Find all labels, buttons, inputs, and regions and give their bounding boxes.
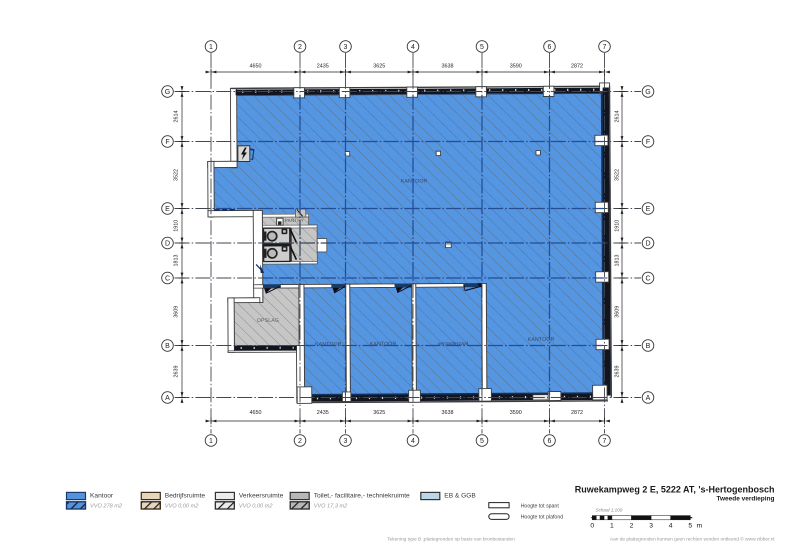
svg-text:D: D [645,240,650,247]
svg-text:3638: 3638 [442,410,454,416]
svg-text:2872: 2872 [571,63,583,69]
svg-text:KANTOOR: KANTOOR [401,178,428,184]
svg-text:2872: 2872 [571,410,583,416]
svg-text:C: C [645,275,650,282]
svg-text:Hoogte tot spant: Hoogte tot spant [521,504,560,510]
svg-text:2435: 2435 [317,410,329,416]
svg-text:2614: 2614 [615,111,621,123]
svg-text:3: 3 [344,44,348,51]
svg-text:5: 5 [480,438,484,445]
svg-text:1910: 1910 [174,220,180,232]
svg-text:KANTOOR: KANTOOR [370,341,397,347]
svg-text:PANTRY: PANTRY [285,218,304,223]
svg-text:5: 5 [480,44,484,51]
svg-text:1: 1 [209,44,213,51]
svg-text:OPSLAG: OPSLAG [257,318,279,324]
svg-text:D: D [165,240,170,247]
svg-text:3522: 3522 [615,169,621,181]
svg-text:G: G [165,89,170,96]
svg-text:VVO 17,3 m2: VVO 17,3 m2 [314,504,348,510]
svg-text:m: m [696,522,702,529]
svg-text:Toilet,- facilitaire,- technie: Toilet,- facilitaire,- techniekruimte [314,493,410,500]
svg-text:3625: 3625 [373,410,385,416]
svg-text:B: B [165,343,170,350]
svg-text:1813: 1813 [615,255,621,267]
svg-text:3: 3 [649,522,653,529]
svg-text:KANTOOR: KANTOOR [315,342,342,348]
svg-text:7: 7 [603,44,607,51]
svg-text:Schaal 1:100: Schaal 1:100 [596,507,623,512]
svg-text:2435: 2435 [317,63,329,69]
svg-text:VVO 0,00 m2: VVO 0,00 m2 [239,504,273,510]
svg-text:4650: 4650 [250,410,262,416]
svg-text:F: F [165,139,169,146]
svg-text:2: 2 [298,438,302,445]
svg-text:C: C [165,275,170,282]
svg-text:Tweede verdieping: Tweede verdieping [716,495,774,502]
svg-text:E: E [165,206,170,213]
svg-text:EB & GGB: EB & GGB [444,493,476,500]
svg-text:2639: 2639 [174,366,180,378]
svg-text:Tekening type B ;plattegronden: Tekening type B ;plattegronden op basis … [387,537,515,543]
svg-text:0: 0 [590,522,594,529]
svg-text:4: 4 [411,438,415,445]
svg-text:A: A [646,395,651,402]
svg-text:4650: 4650 [250,63,262,69]
svg-text:3: 3 [344,438,348,445]
svg-text:B: B [646,343,651,350]
svg-text:3638: 3638 [442,63,454,69]
svg-text:2614: 2614 [174,111,180,123]
svg-text:G: G [645,89,650,96]
svg-text:KANTOOR: KANTOOR [528,337,555,343]
svg-text:VVO 278 m2: VVO 278 m2 [90,504,123,510]
svg-text:6: 6 [548,44,552,51]
svg-text:1: 1 [209,438,213,445]
svg-text:F: F [646,139,650,146]
svg-text:E: E [646,206,651,213]
svg-text:VVO 0,00 m2: VVO 0,00 m2 [165,504,199,510]
svg-text:5: 5 [688,522,692,529]
svg-text:Kantoor: Kantoor [90,493,114,500]
svg-text:4: 4 [669,522,673,529]
svg-text:3590: 3590 [510,410,522,416]
svg-text:Bedrijfsruimte: Bedrijfsruimte [165,493,206,500]
svg-text:3625: 3625 [373,63,385,69]
svg-text:Ruwekampweg 2 E, 5222 AT, 's-H: Ruwekampweg 2 E, 5222 AT, 's-Hertogenbos… [575,484,775,494]
svg-text:3609: 3609 [615,306,621,318]
svg-text:Hoogte tot plafond: Hoogte tot plafond [521,515,564,521]
svg-text:3590: 3590 [510,63,522,69]
svg-text:1: 1 [610,522,614,529]
svg-text:3522: 3522 [174,169,180,181]
svg-text:vergaderzaal: vergaderzaal [438,341,469,347]
svg-text:4: 4 [411,44,415,51]
svg-text:2639: 2639 [615,366,621,378]
svg-text:3609: 3609 [174,306,180,318]
svg-text:1910: 1910 [615,220,621,232]
svg-text:A: A [165,395,170,402]
svg-text:7: 7 [603,438,607,445]
svg-text:1813: 1813 [174,255,180,267]
svg-text:2: 2 [630,522,634,529]
svg-text:2: 2 [298,44,302,51]
svg-text:Aan de plattegronden kunnen ge: Aan de plattegronden kunnen geen rechten… [610,536,775,543]
svg-text:Verkeersruimte: Verkeersruimte [239,493,284,500]
svg-text:6: 6 [548,438,552,445]
